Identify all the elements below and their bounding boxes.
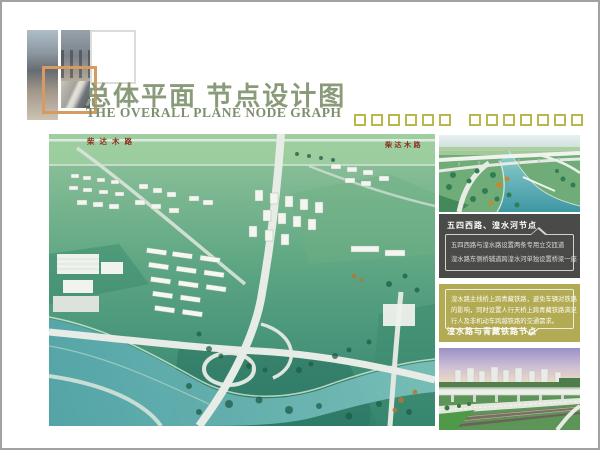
node1-bridge-river-rendering bbox=[439, 135, 580, 212]
road-label-top-left: 柴达木路 bbox=[86, 136, 137, 146]
decor-square bbox=[371, 114, 383, 126]
decor-square bbox=[520, 114, 532, 126]
node2-title: 湟水路与青藏铁路节点 bbox=[447, 326, 537, 337]
node2-railway-viaduct-rendering bbox=[439, 348, 580, 430]
node2-rendering-svg bbox=[439, 348, 580, 430]
node2-text-line: 湟水路主线桥上跨青藏铁路，避免车辆对铁路 bbox=[451, 294, 568, 305]
decor-square bbox=[486, 114, 498, 126]
decor-square bbox=[405, 114, 417, 126]
decor-square bbox=[537, 114, 549, 126]
node2-text-line: 的影响，同时设置人行天桥上跨青藏铁路满足 bbox=[451, 305, 568, 316]
main-aerial-rendering: 柴达木路 柴达木路 bbox=[49, 134, 435, 426]
node2-caption-panel: 湟水路主线桥上跨青藏铁路，避免车辆对铁路 的影响，同时设置人行天桥上跨青藏铁路满… bbox=[439, 284, 580, 342]
decor-square bbox=[422, 114, 434, 126]
decor-square bbox=[354, 114, 366, 126]
node1-text-line: 湟水路东侧桥辅道跨湟水河单独设置桥梁一座 bbox=[451, 253, 568, 267]
page-subtitle: THE OVERALL PLANE NODE GRAPH bbox=[86, 105, 342, 121]
aerial-svg: 柴达木路 柴达木路 bbox=[49, 134, 435, 426]
node1-title: 五四西路、湟水河节点 bbox=[447, 220, 537, 231]
decor-square bbox=[571, 114, 583, 126]
node1-callout-box: 五四西路与湟水路设置两条专用立交匝道 湟水路东侧桥辅道跨湟水河单独设置桥梁一座 bbox=[445, 234, 574, 271]
decor-square bbox=[439, 114, 451, 126]
decor-squares-group-2 bbox=[469, 114, 583, 127]
node2-callout-box: 湟水路主线桥上跨青藏铁路，避免车辆对铁路 的影响，同时设置人行天桥上跨青藏铁路满… bbox=[445, 289, 574, 329]
decor-square bbox=[503, 114, 515, 126]
node1-rendering-svg bbox=[439, 135, 580, 212]
decor-square bbox=[554, 114, 566, 126]
page-frame: 总体平面 节点设计图 THE OVERALL PLANE NODE GRAPH bbox=[0, 0, 600, 450]
decor-squares-group-1 bbox=[354, 114, 451, 127]
node1-text-line: 五四西路与湟水路设置两条专用立交匝道 bbox=[451, 239, 568, 253]
decor-square bbox=[388, 114, 400, 126]
road-label-top-right: 柴达木路 bbox=[384, 140, 423, 149]
decor-square bbox=[469, 114, 481, 126]
node1-caption-panel: 五四西路、湟水河节点 五四西路与湟水路设置两条专用立交匝道 湟水路东侧桥辅道跨湟… bbox=[439, 214, 580, 278]
